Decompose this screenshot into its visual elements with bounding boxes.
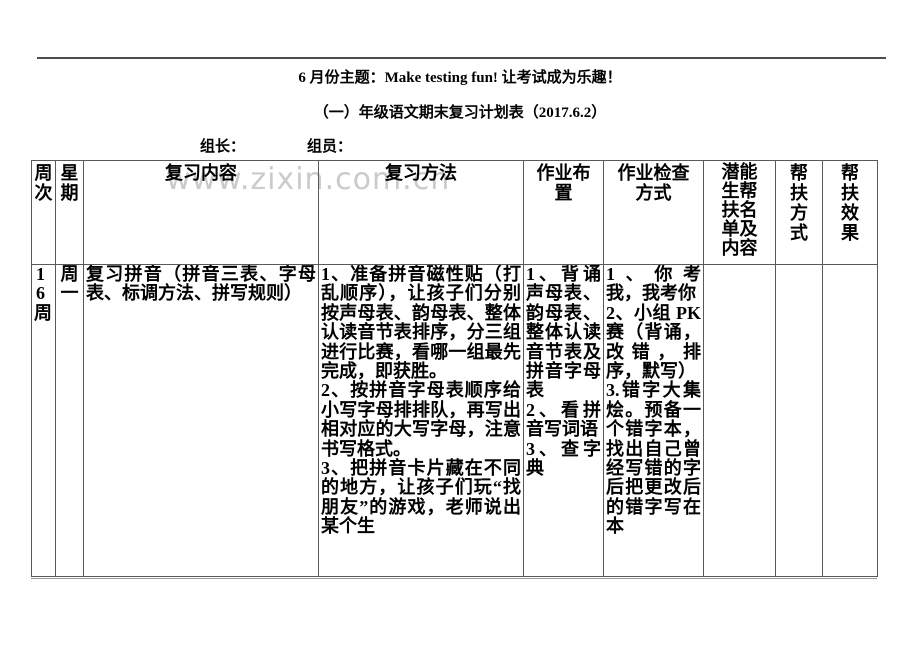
table-bottom-rule (31, 578, 877, 579)
group-leader-label: 组长： (200, 139, 245, 155)
doc-title-plan: （一）年级语文期末复习计划表（2017.6.2） (0, 101, 920, 122)
col-header-potential-students: 潜能生帮扶名单及内容 (704, 161, 776, 265)
list-item: 3、把拼音卡片藏在不同的地方，让孩子们玩“找朋友”的游戏，老师说出某个生 (321, 459, 521, 537)
list-item: 3.错字大集烩。预备一个错字本，找出自己曾经写错的字后把更改后的错字写在本 (606, 381, 701, 536)
group-member-label: 组员： (307, 139, 352, 155)
col-header-help-effect: 帮扶效果 (823, 161, 878, 265)
header-divider (37, 57, 886, 59)
cell-homework: 1、背诵声母表、韵母表、整体认读音节表及拼音字母表2、看拼音写词语3、查字典 (524, 265, 604, 577)
col-header-homework: 作业布置 (524, 161, 604, 265)
document-page: 6 月份主题：Make testing fun! 让考试成为乐趣！ （一）年级语… (0, 0, 920, 651)
list-item: 2、看拼音写词语 (526, 401, 601, 440)
list-item: 1、准备拼音磁性贴（打乱顺序），让孩子们分别按声母表、韵母表、整体认读音节表排序… (321, 265, 521, 381)
col-header-homework-check: 作业检查方式 (604, 161, 704, 265)
cell-review-content: 复习拼音（拼音三表、字母表、标调方法、拼写规则） (84, 265, 319, 577)
leaders-line: 组长：组员： (200, 135, 352, 156)
list-item: 2、小组 PK 赛（背诵，改错，排序，默写） (606, 304, 701, 382)
col-header-help-method: 帮扶方式 (776, 161, 823, 265)
cell-review-method: 1、准备拼音磁性贴（打乱顺序），让孩子们分别按声母表、韵母表、整体认读音节表排序… (319, 265, 524, 577)
list-item: 1、背诵声母表、韵母表、整体认读音节表及拼音字母表 (526, 265, 601, 401)
list-item: 2、按拼音字母表顺序给小写字母排排队，再写出相对应的大写字母，注意书写格式。 (321, 381, 521, 459)
table-row: 16周 周一 复习拼音（拼音三表、字母表、标调方法、拼写规则） 1、准备拼音磁性… (32, 265, 878, 577)
col-header-review-content: 复习内容 (84, 161, 319, 265)
cell-help-effect (823, 265, 878, 577)
cell-day: 周一 (56, 265, 84, 577)
doc-title-theme: 6 月份主题：Make testing fun! 让考试成为乐趣！ (0, 66, 920, 87)
cell-help-method (776, 265, 823, 577)
list-item: 3、查字典 (526, 440, 601, 479)
cell-homework-check: 1、你考我，我考你2、小组 PK 赛（背诵，改错，排序，默写）3.错字大集烩。预… (604, 265, 704, 577)
cell-week: 16周 (32, 265, 56, 577)
review-plan-table: 周次 星期 复习内容 复习方法 作业布置 作业检查方式 潜能生帮扶名单及内容 帮… (31, 160, 878, 577)
col-header-day: 星期 (56, 161, 84, 265)
list-item: 1、你考我，我考你 (606, 265, 701, 304)
col-header-review-method: 复习方法 (319, 161, 524, 265)
col-header-week: 周次 (32, 161, 56, 265)
table-header-row: 周次 星期 复习内容 复习方法 作业布置 作业检查方式 潜能生帮扶名单及内容 帮… (32, 161, 878, 265)
cell-potential-students (704, 265, 776, 577)
